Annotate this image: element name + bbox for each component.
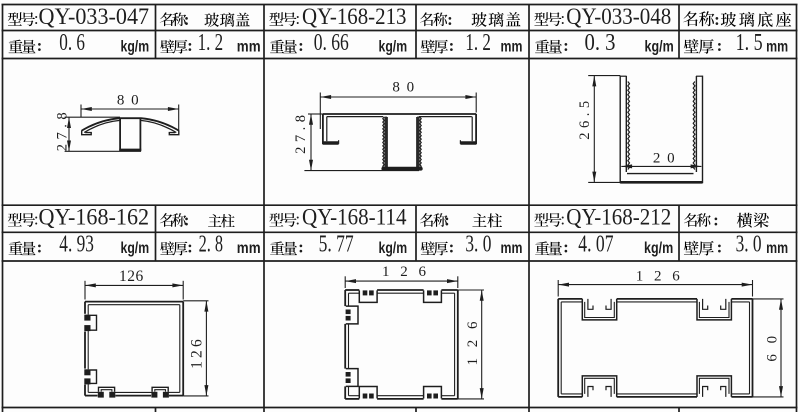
svg-text:QY-033-047: QY-033-047 xyxy=(39,4,150,30)
svg-text:kg/m: kg/m xyxy=(379,240,408,257)
svg-text:1 2 6: 1 2 6 xyxy=(636,269,684,285)
svg-text:1 2 6: 1 2 6 xyxy=(465,318,481,366)
svg-text:4. 07: 4. 07 xyxy=(578,232,613,258)
svg-text::: : xyxy=(187,238,193,257)
svg-text::: : xyxy=(295,210,300,229)
svg-text:mm: mm xyxy=(766,38,788,55)
svg-text::: : xyxy=(449,36,455,55)
svg-text:6 0: 6 0 xyxy=(764,332,780,361)
svg-text::: : xyxy=(560,9,565,28)
svg-text:mm: mm xyxy=(237,240,261,257)
svg-text::: : xyxy=(714,10,720,29)
svg-text:QY-033-048: QY-033-048 xyxy=(566,4,671,30)
svg-text:mm: mm xyxy=(766,240,788,257)
svg-text:1 2 6: 1 2 6 xyxy=(382,264,430,280)
svg-text::: : xyxy=(563,238,569,257)
svg-text:26.5: 26.5 xyxy=(577,96,593,139)
svg-text::: : xyxy=(717,36,723,55)
svg-text:27.8: 27.8 xyxy=(55,108,71,151)
svg-text:126: 126 xyxy=(119,268,144,285)
svg-text:QY-168-162: QY-168-162 xyxy=(39,205,150,231)
svg-text:kg/m: kg/m xyxy=(644,240,673,257)
svg-text:0. 3: 0. 3 xyxy=(585,30,616,56)
svg-text:kg/m: kg/m xyxy=(121,38,150,55)
svg-text:1. 2: 1. 2 xyxy=(198,30,224,56)
svg-text:kg/m: kg/m xyxy=(645,38,674,55)
svg-text:1. 5: 1. 5 xyxy=(736,30,763,56)
svg-text:QY-168-213: QY-168-213 xyxy=(302,4,407,30)
svg-text::: : xyxy=(37,238,43,257)
svg-text:mm: mm xyxy=(501,240,523,257)
svg-text:0. 6: 0. 6 xyxy=(59,30,85,56)
svg-text::: : xyxy=(713,211,719,230)
svg-text::: : xyxy=(184,10,190,29)
svg-text:QY-168-212: QY-168-212 xyxy=(566,205,671,231)
svg-text::: : xyxy=(449,238,455,257)
svg-text:kg/m: kg/m xyxy=(379,38,408,55)
svg-text:0. 66: 0. 66 xyxy=(314,30,349,56)
svg-text::: : xyxy=(444,211,450,230)
svg-text:4. 93: 4. 93 xyxy=(59,232,94,258)
svg-text:126: 126 xyxy=(189,336,206,369)
svg-text:2. 8: 2. 8 xyxy=(199,232,224,258)
svg-text::: : xyxy=(298,238,304,257)
svg-text::: : xyxy=(187,36,193,55)
svg-text::: : xyxy=(717,238,723,257)
svg-text::: : xyxy=(37,36,43,55)
svg-text:8 0: 8 0 xyxy=(117,93,140,109)
svg-text:2 0: 2 0 xyxy=(653,151,676,167)
svg-text:5. 77: 5. 77 xyxy=(319,232,354,258)
svg-text:kg/m: kg/m xyxy=(121,240,150,257)
svg-text:8 0: 8 0 xyxy=(392,80,415,96)
svg-text::: : xyxy=(563,36,569,55)
svg-text:mm: mm xyxy=(237,38,261,55)
svg-text:27.8: 27.8 xyxy=(293,111,309,154)
svg-text:3. 0: 3. 0 xyxy=(465,232,491,258)
svg-text::: : xyxy=(447,10,453,29)
svg-text:3. 0: 3. 0 xyxy=(736,232,762,258)
svg-text:1. 2: 1. 2 xyxy=(465,30,491,56)
svg-text:mm: mm xyxy=(501,38,523,55)
svg-text::: : xyxy=(295,9,300,28)
svg-text::: : xyxy=(184,211,190,230)
svg-text:QY-168-114: QY-168-114 xyxy=(302,205,407,231)
svg-text::: : xyxy=(298,36,304,55)
svg-text::: : xyxy=(560,210,565,229)
